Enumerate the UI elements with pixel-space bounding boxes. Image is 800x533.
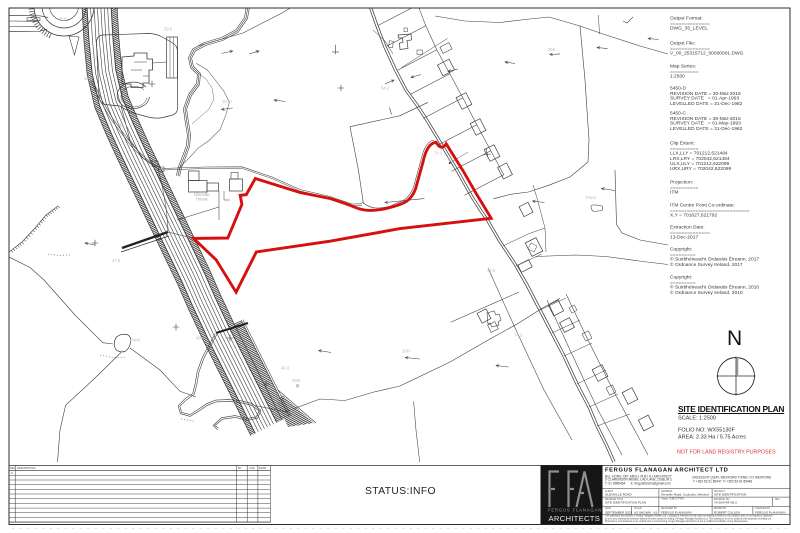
svg-text:46.4: 46.4: [196, 336, 205, 341]
svg-text:48.9: 48.9: [58, 17, 67, 22]
svg-text:Pond: Pond: [130, 338, 140, 343]
svg-text:10.4+: 10.4+: [222, 99, 233, 104]
svg-text:74.3: 74.3: [514, 333, 523, 338]
svg-text:47.6: 47.6: [112, 258, 121, 263]
svg-text:Pond: Pond: [586, 195, 596, 200]
svg-text:Well: Well: [292, 378, 300, 383]
svg-text:106+: 106+: [402, 349, 412, 354]
svg-text:74.1: 74.1: [434, 151, 443, 156]
svg-text:74.5: 74.5: [487, 268, 496, 273]
svg-text:35K: 35K: [548, 47, 556, 52]
svg-text:46.3: 46.3: [281, 366, 290, 371]
svg-text:46.1: 46.1: [84, 76, 93, 81]
svg-text:39.6: 39.6: [164, 27, 173, 32]
svg-text:49.1: 49.1: [119, 123, 128, 128]
svg-text:House: House: [196, 197, 209, 202]
svg-text:64.2: 64.2: [381, 86, 390, 91]
